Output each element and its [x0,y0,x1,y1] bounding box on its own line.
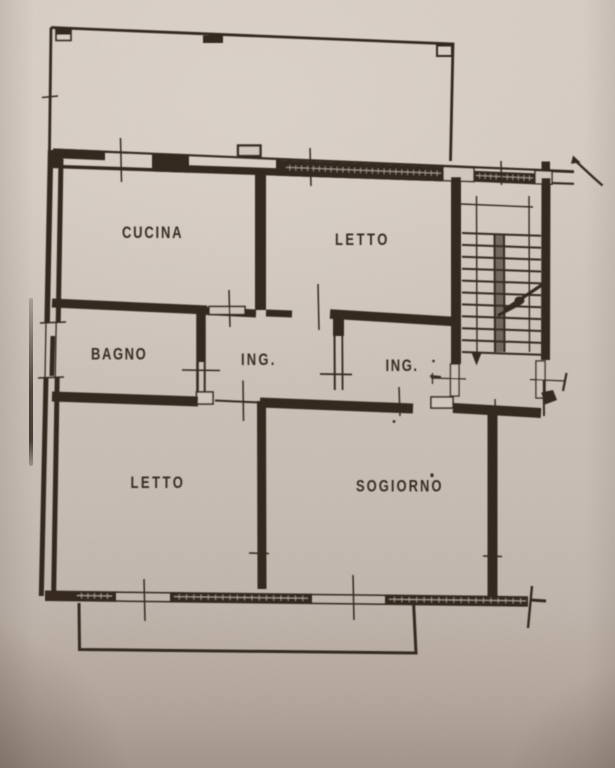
svg-text:ING.: ING. [386,358,419,376]
svg-text:ING.: ING. [241,352,277,370]
svg-text:LETTO: LETTO [131,475,186,493]
svg-text:LETTO: LETTO [335,232,390,250]
svg-text:BAGNO: BAGNO [91,346,147,364]
svg-text:SOGIORNO: SOGIORNO [356,478,443,496]
svg-text:CUCINA: CUCINA [122,225,183,243]
